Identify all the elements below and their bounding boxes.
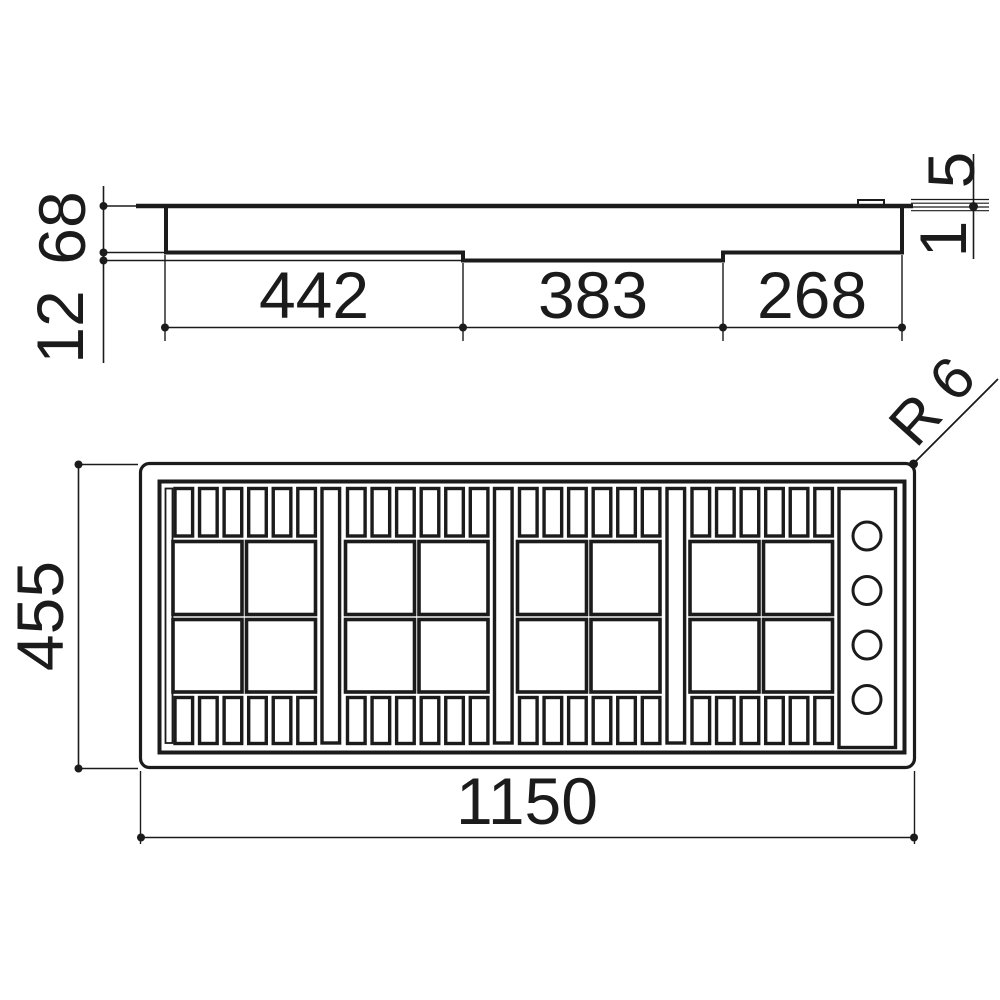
grate-finger-bottom (298, 698, 316, 744)
grate-finger-bottom (421, 698, 439, 744)
dimension-sections: 442 383 268 (161, 255, 906, 341)
grate-finger-top (249, 489, 267, 537)
dimension-label-section-middle: 383 (538, 258, 648, 332)
grate-finger-top (421, 489, 439, 537)
grate-finger-bottom (520, 698, 538, 744)
grate-square (346, 620, 415, 693)
technical-drawing-page: 68 12 442 383 268 5 1 (0, 0, 1000, 1000)
grate-square (173, 620, 242, 693)
grate-finger-top (224, 489, 242, 537)
grate-finger-bottom (446, 698, 464, 744)
control-knob (853, 522, 881, 550)
dimension-point (137, 834, 145, 842)
grate-finger-top (766, 489, 784, 537)
grate-finger-top (273, 489, 291, 537)
dimension-label-overall-depth: 455 (3, 561, 77, 671)
grate-finger-top (815, 489, 833, 537)
dimension-depth: 68 12 (23, 186, 461, 364)
grate-square (419, 542, 488, 615)
grate-finger-bottom (397, 698, 415, 744)
grate-finger-bottom (790, 698, 808, 744)
dimension-label-overall-width: 1150 (456, 764, 598, 838)
grate-separator-bar (322, 489, 340, 744)
grate-finger-top (470, 489, 488, 537)
grate-square (764, 620, 833, 693)
dimension-overall-depth: 455 (3, 461, 138, 773)
grate-finger-bottom (348, 698, 366, 744)
grate-finger-top (200, 489, 218, 537)
grate-finger-top (397, 489, 415, 537)
grate-finger-top (175, 489, 193, 537)
grate-finger-top (692, 489, 710, 537)
dimension-point (100, 202, 108, 210)
control-panel (839, 489, 896, 748)
grate-separator-bar (667, 489, 685, 744)
grate-finger-top (593, 489, 611, 537)
grate-finger-bottom (224, 698, 242, 744)
dimension-point (898, 324, 906, 332)
grate-finger-top (446, 489, 464, 537)
dimension-point (75, 461, 83, 469)
grate-square (591, 542, 660, 615)
grate-finger-bottom (815, 698, 833, 744)
grate-finger-bottom (618, 698, 636, 744)
grate-finger-top (348, 489, 366, 537)
grate-separator-bar (495, 489, 513, 744)
leader-point (909, 460, 918, 469)
grate-square (346, 542, 415, 615)
side-view-mounting-tab (858, 200, 884, 204)
control-knob (853, 631, 881, 659)
grate-finger-top (520, 489, 538, 537)
control-panel-frame (839, 489, 896, 748)
side-view-body-outline (166, 208, 902, 261)
grate-finger-bottom (692, 698, 710, 744)
dimension-point (910, 834, 918, 842)
grate-finger-top (618, 489, 636, 537)
control-knob (853, 686, 881, 714)
grate-finger-bottom (175, 698, 193, 744)
grate-square (247, 542, 316, 615)
dimension-point (719, 324, 727, 332)
grate-square (690, 620, 759, 693)
dimension-label-depth-main: 68 (25, 191, 99, 264)
grate-finger-top (372, 489, 390, 537)
grate-finger-top (790, 489, 808, 537)
dimension-label-rim-lip: 1 (906, 221, 980, 258)
grate-finger-top (569, 489, 587, 537)
dimension-label-section-left: 442 (259, 258, 369, 332)
side-view: 68 12 442 383 268 5 1 (23, 152, 989, 364)
grate-finger-top (642, 489, 660, 537)
dimension-label-rim-height: 5 (914, 152, 988, 189)
hob-technical-drawing: 68 12 442 383 268 5 1 (0, 0, 1000, 1000)
dimension-label-section-right: 268 (757, 258, 867, 332)
grate-finger-top (298, 489, 316, 537)
grate-square (690, 542, 759, 615)
grate-square (247, 620, 316, 693)
grate-finger-bottom (249, 698, 267, 744)
grate-finger-bottom (273, 698, 291, 744)
grate-finger-bottom (766, 698, 784, 744)
control-knob (853, 577, 881, 605)
dimension-point (969, 202, 978, 211)
grate-finger-bottom (569, 698, 587, 744)
dimension-label-corner-radius: R 6 (876, 344, 988, 458)
grate-finger-top (717, 489, 735, 537)
grate-square (419, 620, 488, 693)
grate-pattern (166, 489, 833, 744)
dimension-point (161, 324, 169, 332)
grate-finger-bottom (642, 698, 660, 744)
grate-finger-bottom (741, 698, 759, 744)
dimension-point (100, 257, 108, 265)
dimension-point (75, 765, 83, 773)
grate-square (764, 542, 833, 615)
grate-finger-bottom (470, 698, 488, 744)
grate-finger-top (741, 489, 759, 537)
dimension-label-depth-step: 12 (23, 290, 97, 363)
dimension-corner-radius: R 6 (876, 344, 998, 469)
dimension-overall-width: 1150 (137, 764, 918, 844)
grate-square (173, 542, 242, 615)
dimension-point (459, 324, 467, 332)
grate-square (518, 542, 587, 615)
grate-finger-top (544, 489, 562, 537)
grate-finger-bottom (544, 698, 562, 744)
plan-view: 455 1150 R 6 (3, 344, 998, 844)
grate-finger-bottom (200, 698, 218, 744)
grate-finger-bottom (593, 698, 611, 744)
grate-square (591, 620, 660, 693)
dimension-rim: 5 1 (906, 152, 989, 259)
grate-square (518, 620, 587, 693)
grate-finger-bottom (717, 698, 735, 744)
plan-inner-frame (160, 482, 905, 753)
grate-finger-bottom (372, 698, 390, 744)
dimension-point (100, 249, 108, 257)
